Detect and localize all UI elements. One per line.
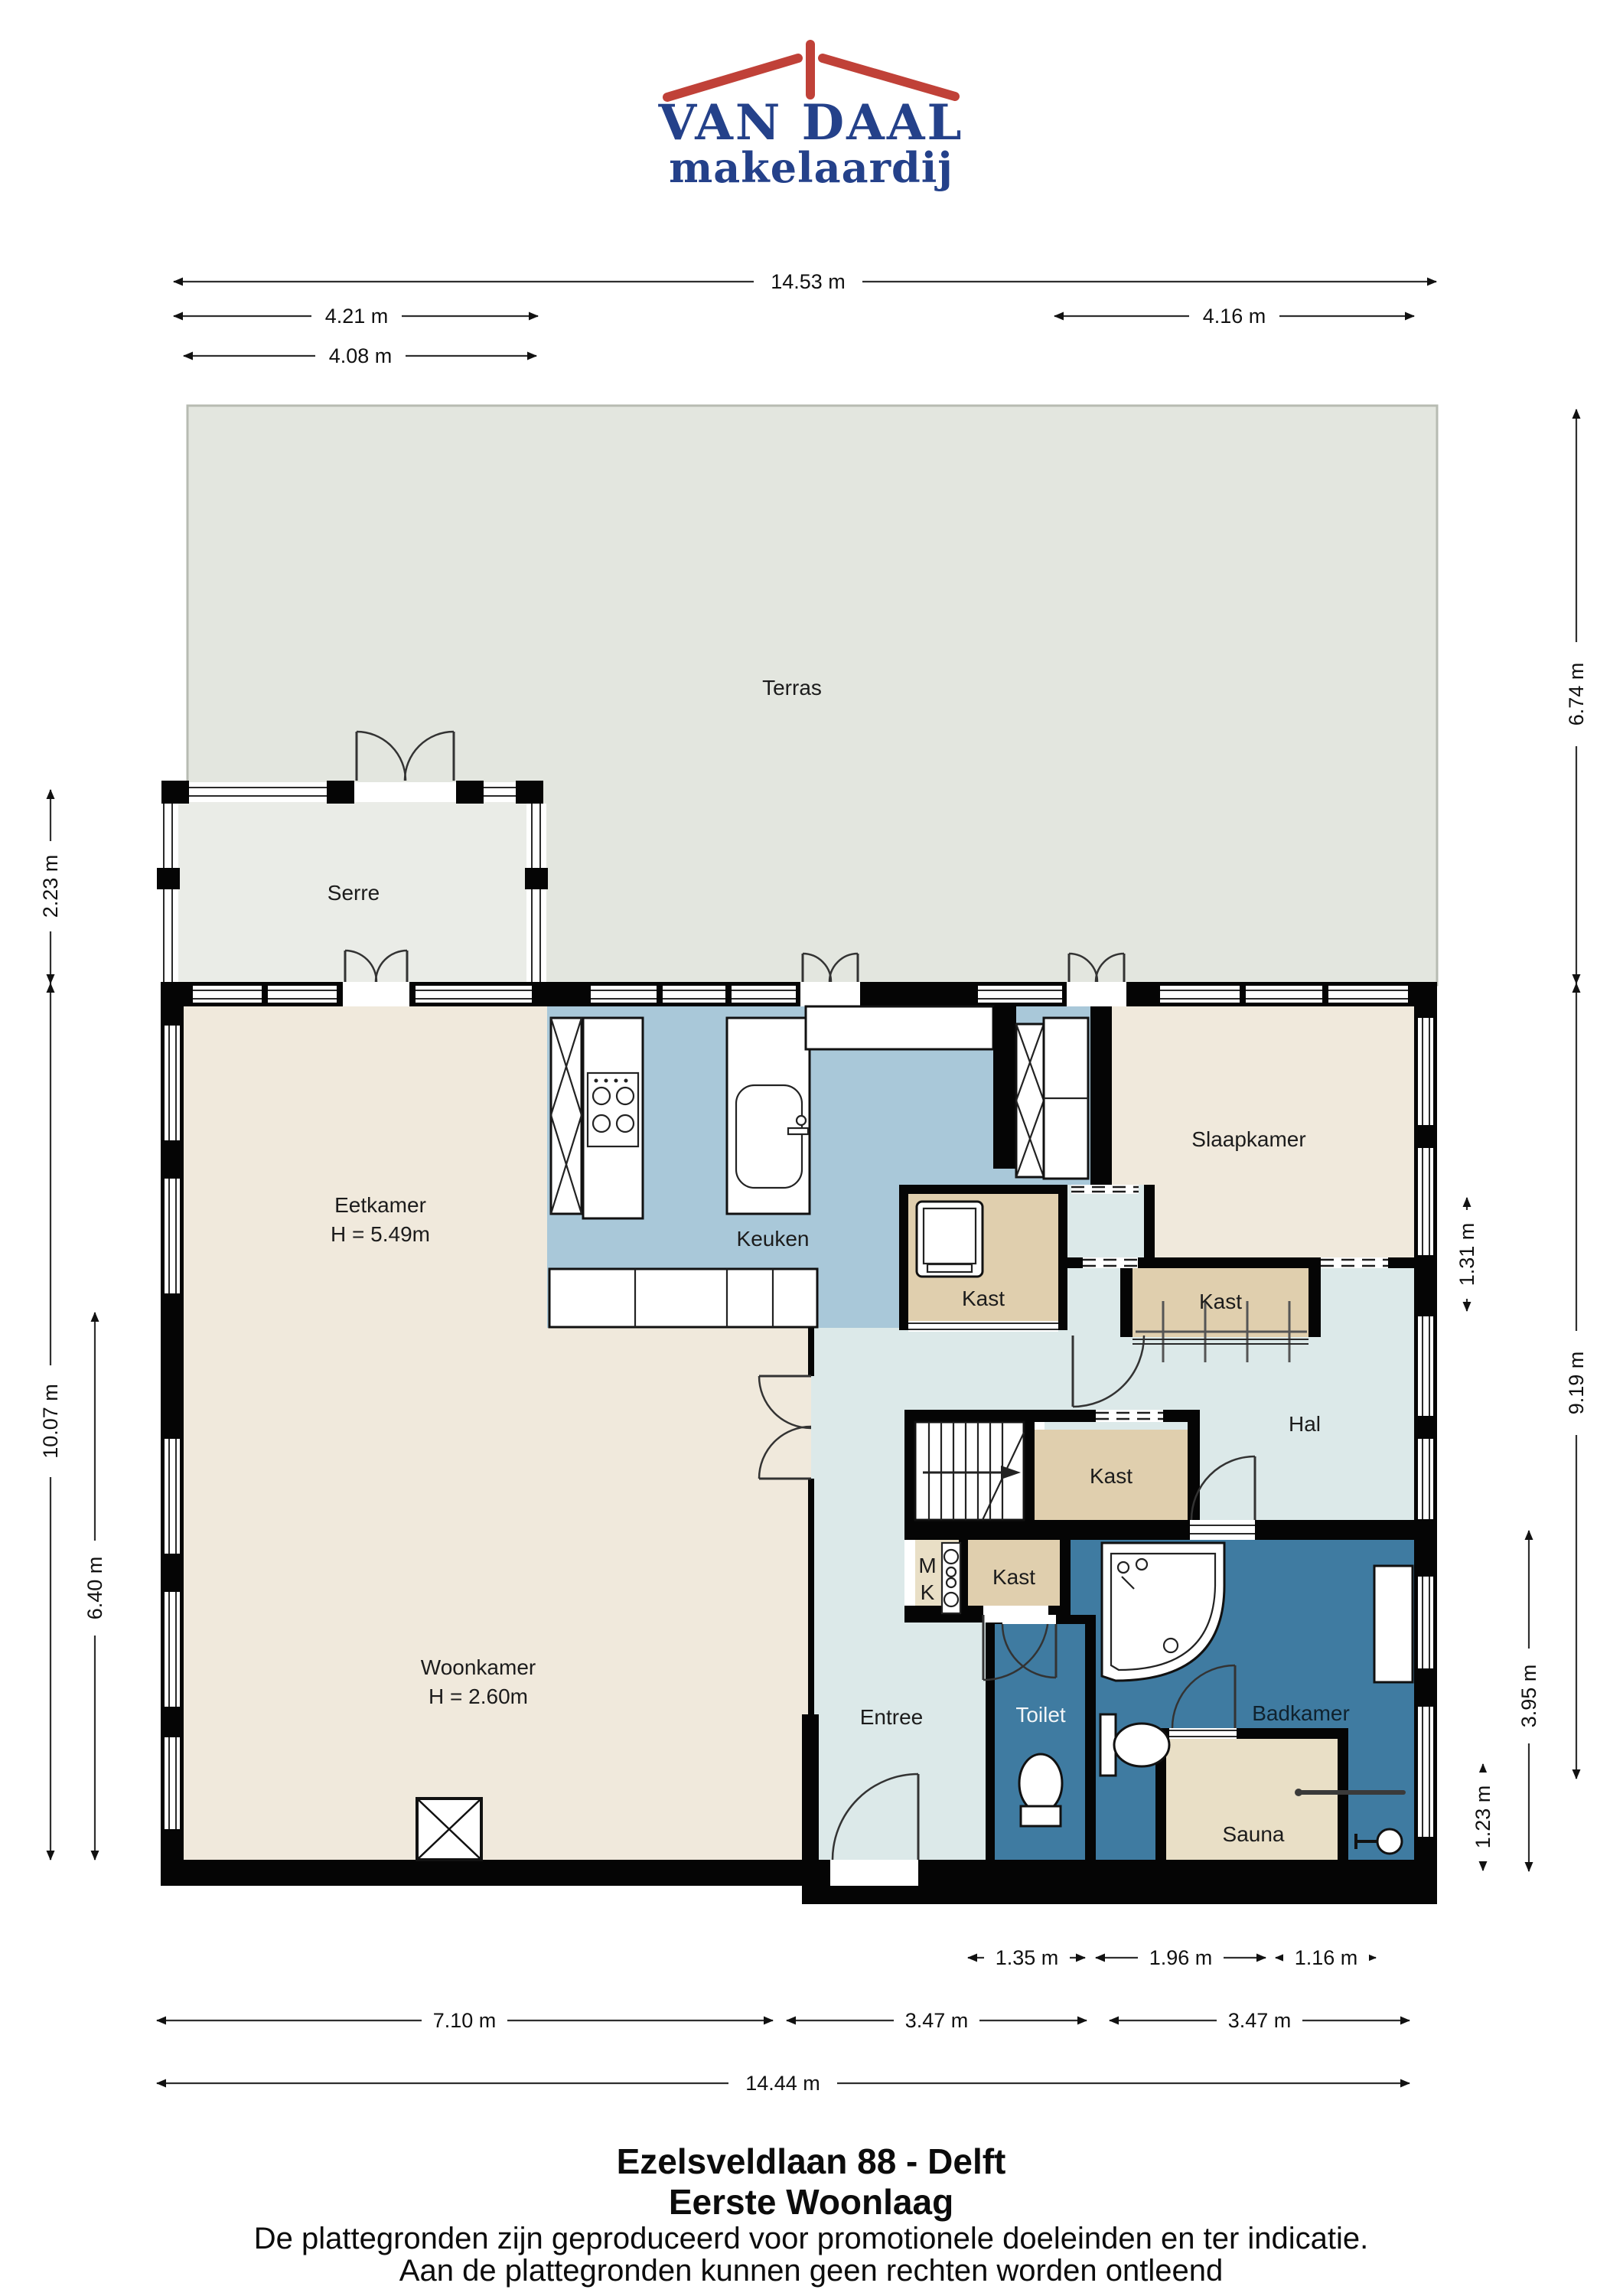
label-kast-hal: Kast xyxy=(1090,1464,1133,1488)
label-woonkamer-height: H = 2.60m xyxy=(429,1684,528,1708)
label-meterkast-m: M xyxy=(918,1554,936,1577)
toilet-icon xyxy=(1019,1754,1062,1826)
dim-bottom-rechts: 3.47 m xyxy=(1110,2005,1410,2036)
dim-top-right: 4.16 m xyxy=(1054,301,1414,331)
svg-text:10.07 m: 10.07 m xyxy=(39,1384,62,1459)
svg-text:3.47 m: 3.47 m xyxy=(905,2009,969,2032)
label-meterkast-k: K xyxy=(921,1580,935,1604)
label-sauna: Sauna xyxy=(1223,1822,1285,1846)
dim-bottom-toilet: 1.35 m xyxy=(968,1942,1085,1973)
dim-bottom-mid: 3.47 m xyxy=(787,2005,1087,2036)
svg-text:1.31 m: 1.31 m xyxy=(1455,1223,1478,1287)
footer-floor: Eerste Woonlaag xyxy=(669,2182,953,2222)
footer: Ezelsveldlaan 88 - Delft Eerste Woonlaag… xyxy=(254,2141,1369,2288)
svg-text:3.95 m: 3.95 m xyxy=(1517,1665,1540,1728)
svg-text:1.96 m: 1.96 m xyxy=(1149,1946,1213,1969)
label-woonkamer: Woonkamer xyxy=(421,1655,536,1679)
logo-tagline-text: makelaardij xyxy=(669,143,953,192)
dim-bottom-woonkamer: 7.10 m xyxy=(157,2005,773,2036)
svg-text:4.21 m: 4.21 m xyxy=(325,305,389,328)
washing-machine-icon xyxy=(917,1202,983,1277)
label-hal: Hal xyxy=(1289,1412,1321,1436)
svg-text:1.16 m: 1.16 m xyxy=(1295,1946,1358,1969)
duct-shaft-icon xyxy=(551,1018,582,1214)
dim-right-house: 9.19 m xyxy=(1561,983,1592,1779)
floorplan-svg: VAN DAAL makelaardij xyxy=(0,0,1623,2296)
label-entree: Entree xyxy=(860,1705,924,1729)
label-keuken: Keuken xyxy=(737,1227,810,1251)
svg-text:3.47 m: 3.47 m xyxy=(1228,2009,1292,2032)
label-terras: Terras xyxy=(762,676,822,700)
counter-top-right xyxy=(806,1006,993,1049)
stairs xyxy=(915,1422,1024,1520)
dim-top-left1: 4.21 m xyxy=(174,301,538,331)
svg-text:1.35 m: 1.35 m xyxy=(996,1946,1059,1969)
label-kast-slaapkamer: Kast xyxy=(1199,1290,1242,1313)
svg-text:1.23 m: 1.23 m xyxy=(1471,1786,1494,1849)
svg-text:7.10 m: 7.10 m xyxy=(433,2009,497,2032)
duct-shaft2-icon xyxy=(1016,1024,1044,1177)
svg-text:14.53 m: 14.53 m xyxy=(771,270,846,293)
sink-icon xyxy=(736,1085,808,1188)
vanity xyxy=(1374,1566,1413,1682)
dim-left-woonkamer: 6.40 m xyxy=(80,1313,110,1860)
dim-right-kast: 1.31 m xyxy=(1452,1198,1482,1311)
dim-right-terras: 6.74 m xyxy=(1561,409,1592,983)
logo: VAN DAAL makelaardij xyxy=(658,44,964,222)
label-serre: Serre xyxy=(328,881,380,905)
dim-bottom-right: 1.16 m xyxy=(1276,1942,1376,1973)
dim-top-left2: 4.08 m xyxy=(184,341,536,371)
dim-top-total: 14.53 m xyxy=(174,266,1436,297)
dim-left-serre: 2.23 m xyxy=(35,790,66,983)
dim-right-badkamer: 3.95 m xyxy=(1514,1531,1544,1871)
floorplan-page: VAN DAAL makelaardij xyxy=(0,0,1623,2296)
label-kast-entree: Kast xyxy=(992,1565,1035,1589)
label-kast-wasmachine: Kast xyxy=(962,1287,1005,1310)
label-toilet: Toilet xyxy=(1015,1703,1066,1727)
counter-bottom-row xyxy=(549,1269,817,1327)
footer-disclaimer-2: Aan de plattegronden kunnen geen rechten… xyxy=(399,2254,1223,2288)
footer-disclaimer-1: De plattegronden zijn geproduceerd voor … xyxy=(254,2222,1369,2255)
svg-text:6.74 m: 6.74 m xyxy=(1565,663,1588,726)
column-icon xyxy=(417,1799,481,1860)
dim-bottom-sauna: 1.96 m xyxy=(1096,1942,1266,1973)
dim-right-sauna: 1.23 m xyxy=(1468,1764,1498,1870)
dim-bottom-total: 14.44 m xyxy=(157,2068,1410,2099)
dim-left-house: 10.07 m xyxy=(35,983,66,1860)
label-eetkamer-height: H = 5.49m xyxy=(331,1222,430,1246)
label-slaapkamer: Slaapkamer xyxy=(1191,1127,1305,1151)
svg-text:2.23 m: 2.23 m xyxy=(39,855,62,918)
meter-cabinet-icon xyxy=(942,1543,960,1613)
stove-icon xyxy=(588,1073,638,1146)
label-eetkamer: Eetkamer xyxy=(334,1193,426,1217)
label-badkamer: Badkamer xyxy=(1252,1701,1350,1725)
svg-text:4.16 m: 4.16 m xyxy=(1203,305,1266,328)
svg-text:4.08 m: 4.08 m xyxy=(329,344,393,367)
svg-text:9.19 m: 9.19 m xyxy=(1565,1352,1588,1415)
svg-text:14.44 m: 14.44 m xyxy=(745,2072,820,2095)
svg-text:6.40 m: 6.40 m xyxy=(83,1557,106,1620)
footer-address: Ezelsveldlaan 88 - Delft xyxy=(617,2141,1006,2181)
